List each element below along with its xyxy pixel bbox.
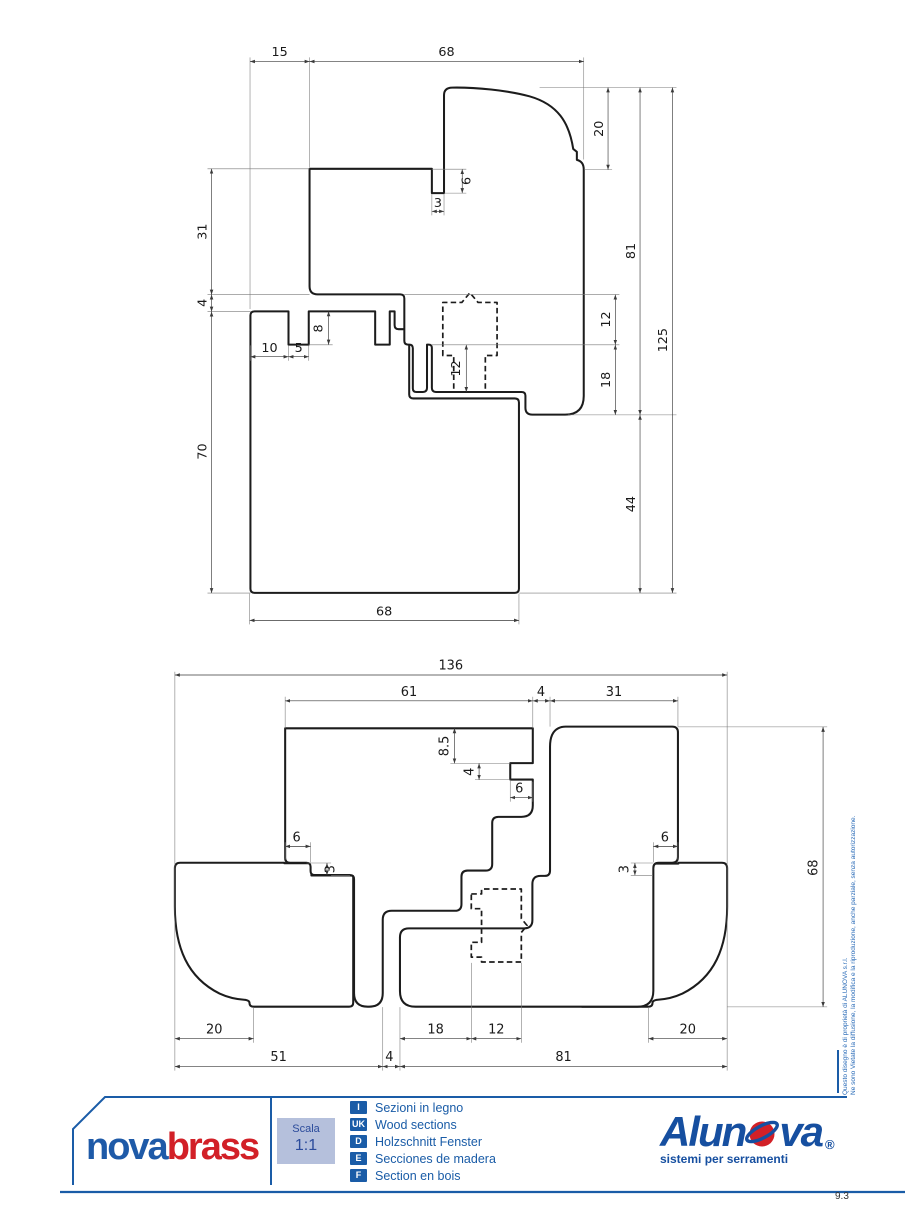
legend-text: Secciones de madera <box>375 1152 496 1166</box>
left-cover-profile <box>175 863 353 1007</box>
dim-18: 18 <box>400 1022 471 1038</box>
dim-12: 12 <box>471 1022 521 1038</box>
bottom-section-drawing: 136 61 4 31 8.5 4 6 6 <box>175 659 827 1071</box>
scale-box: Scala 1:1 <box>277 1118 335 1164</box>
dim-label: 20 <box>206 1022 222 1037</box>
dim-label: 51 <box>270 1050 286 1065</box>
dim-label: 31 <box>606 685 622 700</box>
copyright-note: Questo disegno è di proprietà di ALUNOVA… <box>842 816 858 1095</box>
legend-text: Wood sections <box>375 1118 457 1132</box>
legend-text: Holzschnitt Fenster <box>375 1135 482 1149</box>
dim-label: 8.5 <box>438 736 453 757</box>
dim-15: 15 <box>250 45 310 61</box>
language-badge: D <box>350 1135 367 1148</box>
dim-label: 4 <box>462 768 477 776</box>
dim-label: 10 <box>261 341 277 356</box>
dim-label: 31 <box>195 223 210 239</box>
dim-label: 12 <box>599 311 614 327</box>
dim-4-top: 4 <box>533 685 550 701</box>
dim-label: 5 <box>295 341 303 356</box>
dim-label: 125 <box>656 328 671 352</box>
dim-label: 12 <box>449 360 464 376</box>
dim-20-right: 20 <box>648 1022 727 1038</box>
dim-125: 125 <box>656 87 672 593</box>
language-badge: UK <box>350 1118 367 1131</box>
dim-label: 20 <box>680 1022 696 1037</box>
dim-label: 4 <box>195 299 210 307</box>
dim-18: 18 <box>599 345 615 415</box>
language-legend: I Sezioni in legno UK Wood sections D Ho… <box>350 1099 496 1184</box>
dim-label: 68 <box>438 45 454 60</box>
dim-20-left: 20 <box>175 1022 254 1038</box>
dim-label: 4 <box>385 1050 393 1065</box>
language-badge: E <box>350 1152 367 1165</box>
novabrass-logo: novabrass <box>86 1126 258 1169</box>
dim-label: 15 <box>271 45 287 60</box>
dim-31: 31 <box>195 169 211 295</box>
alunova-logo-part1: Alun <box>660 1108 745 1156</box>
dim-label: 12 <box>488 1022 504 1037</box>
dim-label: 70 <box>195 443 210 459</box>
alunova-logo-part2: va <box>779 1108 822 1156</box>
page-number: 9.3 <box>835 1191 849 1202</box>
registered-mark: ® <box>825 1137 833 1152</box>
dim-label: 6 <box>293 830 301 845</box>
copyright-line1: Questo disegno è di proprietà di ALUNOVA… <box>842 816 850 1095</box>
dim-4: 4 <box>195 295 211 312</box>
language-badge: I <box>350 1101 367 1114</box>
dim-4-bottom: 4 <box>383 1050 400 1066</box>
dim-20: 20 <box>592 87 608 169</box>
legend-row-es: E Secciones de madera <box>350 1150 496 1167</box>
legend-row-it: I Sezioni in legno <box>350 1099 496 1116</box>
dim-label: 3 <box>617 865 632 873</box>
dim-label: 8 <box>312 324 327 332</box>
novabrass-logo-nova: nova <box>86 1126 167 1168</box>
dim-label: 81 <box>624 243 639 259</box>
dim-70: 70 <box>195 312 211 593</box>
dim-label: 3 <box>323 865 338 873</box>
novabrass-logo-brass: brass <box>167 1126 258 1168</box>
dim-label: 3 <box>434 196 442 211</box>
legend-row-fr: F Section en bois <box>350 1167 496 1184</box>
scale-label: Scala <box>277 1123 335 1135</box>
legend-row-uk: UK Wood sections <box>350 1116 496 1133</box>
dim-label: 44 <box>624 496 639 512</box>
dim-label: 136 <box>438 659 463 674</box>
planet-o-icon <box>744 1113 780 1151</box>
legend-text: Section en bois <box>375 1169 460 1183</box>
dim-51: 51 <box>175 1050 383 1066</box>
dim-label: 68 <box>806 859 821 875</box>
dim-label: 61 <box>401 685 417 700</box>
alunova-logo: Alun va ® sistemi per serramenti <box>660 1108 833 1166</box>
dim-68-top: 68 <box>310 45 584 61</box>
dim-12-right: 12 <box>599 295 615 345</box>
top-section-drawing: 15 68 20 81 125 6 3 31 <box>195 45 676 624</box>
dim-label: 6 <box>661 830 669 845</box>
catalog-page: 15 68 20 81 125 6 3 31 <box>0 0 920 1229</box>
dim-label: 4 <box>537 685 545 700</box>
dim-label: 20 <box>592 121 607 137</box>
dim-136: 136 <box>175 659 727 675</box>
dim-61: 61 <box>285 685 533 701</box>
dim-68: 68 <box>806 727 823 1007</box>
dim-81: 81 <box>624 87 640 414</box>
dim-label: 18 <box>427 1022 443 1037</box>
dim-31: 31 <box>550 685 678 701</box>
copyright-line2: Ne sono Vietate la diffusione, la modifi… <box>850 816 858 1095</box>
language-badge: F <box>350 1169 367 1182</box>
dim-label: 68 <box>376 605 392 620</box>
dim-81: 81 <box>400 1050 727 1066</box>
legend-text: Sezioni in legno <box>375 1101 463 1115</box>
dim-label: 81 <box>555 1050 571 1065</box>
dim-label: 6 <box>459 177 474 185</box>
dim-label: 6 <box>515 782 523 797</box>
dim-44: 44 <box>624 415 640 593</box>
legend-row-de: D Holzschnitt Fenster <box>350 1133 496 1150</box>
dim-68-bottom: 68 <box>250 605 519 621</box>
dim-label: 18 <box>599 372 614 388</box>
scale-value: 1:1 <box>277 1137 335 1155</box>
